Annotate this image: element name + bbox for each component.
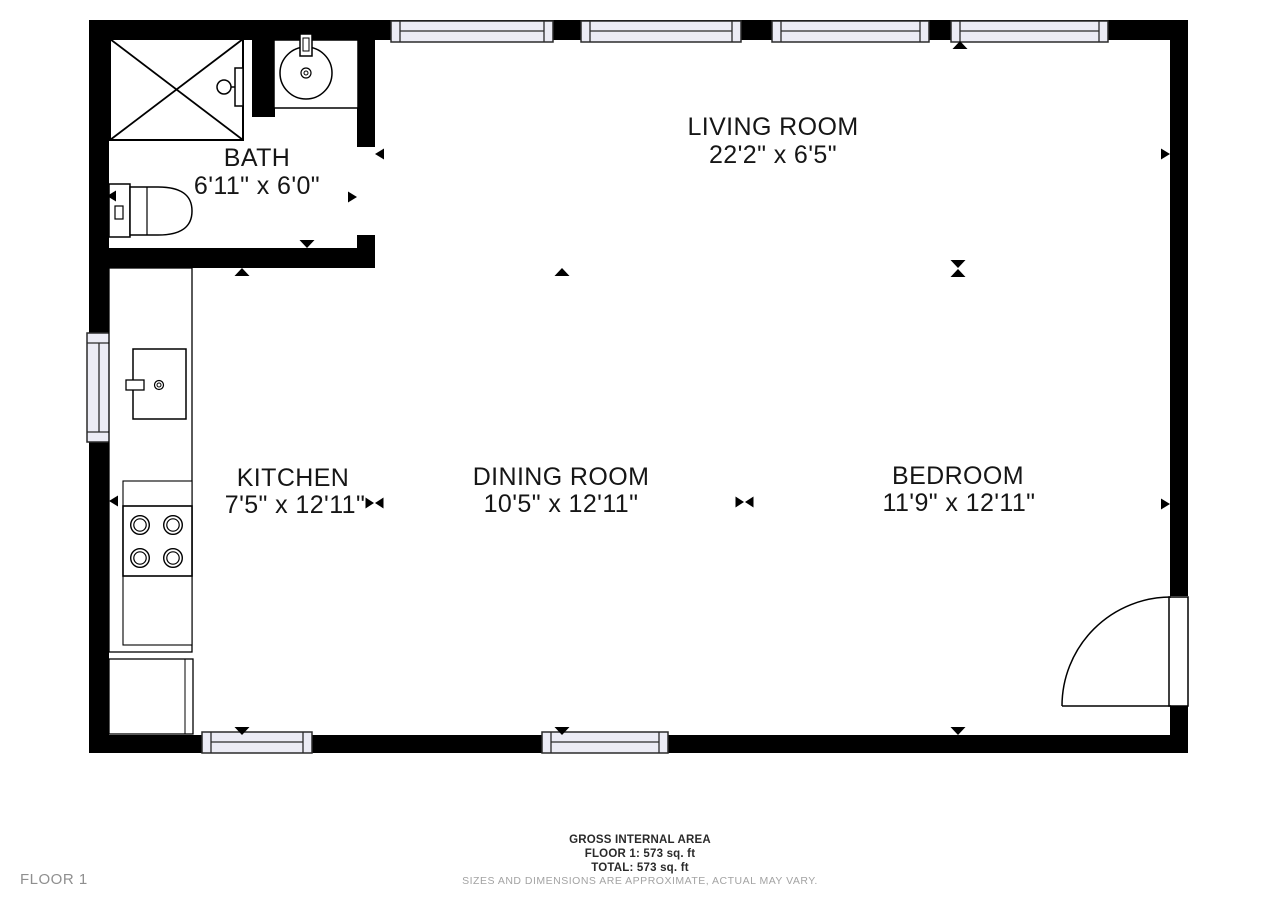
dining-room-label: DINING ROOM (473, 463, 650, 491)
kitchen-unit-bottom (109, 659, 193, 734)
living-room-dimensions: 22'2" x 6'5" (709, 141, 837, 169)
room-labels: BATH 6'11" x 6'0" LIVING ROOM 22'2" x 6'… (194, 113, 1036, 519)
dimension-arrow-icon (1161, 149, 1170, 160)
kitchen-counter (109, 268, 193, 734)
bath-right-wall-lower (357, 235, 375, 268)
bedroom-label: BEDROOM (892, 462, 1024, 490)
dimension-arrow-icon (300, 240, 315, 248)
floor-plan: BATH 6'11" x 6'0" LIVING ROOM 22'2" x 6'… (0, 0, 1280, 905)
toilet (109, 184, 192, 237)
dimension-bowtie-horizontal-icon (366, 498, 384, 509)
door-swing-icon (1062, 597, 1171, 706)
window-top-1 (391, 21, 553, 42)
dimension-arrow-icon (375, 149, 384, 160)
dimension-bowtie-vertical-icon (951, 260, 966, 277)
dimension-arrow-icon (555, 268, 570, 276)
sink-faucet (126, 380, 144, 390)
shower-valve (235, 68, 243, 106)
flush-button (115, 206, 123, 219)
stove (123, 506, 192, 576)
bath-label: BATH (224, 144, 290, 172)
window-left (87, 333, 111, 442)
walls (89, 20, 1188, 753)
bedroom-dimensions: 11'9" x 12'11" (883, 489, 1036, 517)
dining-room-dimensions: 10'5" x 12'11" (484, 490, 639, 518)
bath-bottom-wall (89, 248, 375, 268)
dimension-bowtie-horizontal-icon (736, 497, 754, 508)
footer: GROSS INTERNAL AREA FLOOR 1: 573 sq. ft … (20, 834, 818, 888)
door-panel (1169, 597, 1188, 706)
vanity-sink (274, 34, 358, 108)
window-top-3 (772, 21, 929, 42)
kitchen-sink (126, 349, 186, 419)
floor-number-label: FLOOR 1 (20, 871, 88, 888)
total-area-line: TOTAL: 573 sq. ft (591, 862, 689, 874)
window-top-2 (581, 21, 741, 42)
shower (110, 39, 243, 140)
dimension-arrow-icon (235, 268, 250, 276)
dimension-arrow-icon (1161, 499, 1170, 510)
living-room-label: LIVING ROOM (687, 113, 858, 141)
window-bottom-1 (202, 732, 312, 753)
entry-door (1062, 596, 1188, 706)
bath-dimensions: 6'11" x 6'0" (194, 172, 320, 200)
kitchen-dimensions: 7'5" x 12'11" (225, 491, 365, 519)
window-top-4 (951, 21, 1108, 42)
dimension-arrow-icon (951, 727, 966, 735)
shower-partition-wall (252, 40, 275, 117)
kitchen-label: KITCHEN (237, 464, 350, 492)
window-bottom-2 (542, 732, 668, 753)
bath-right-wall-upper (357, 40, 375, 147)
shower-handle (217, 80, 231, 94)
disclaimer-text: SIZES AND DIMENSIONS ARE APPROXIMATE, AC… (462, 875, 818, 887)
gross-internal-area-title: GROSS INTERNAL AREA (569, 834, 711, 846)
toilet-bowl (130, 187, 192, 235)
dimension-arrow-icon (348, 192, 357, 203)
floor-area-line: FLOOR 1: 573 sq. ft (585, 848, 696, 860)
